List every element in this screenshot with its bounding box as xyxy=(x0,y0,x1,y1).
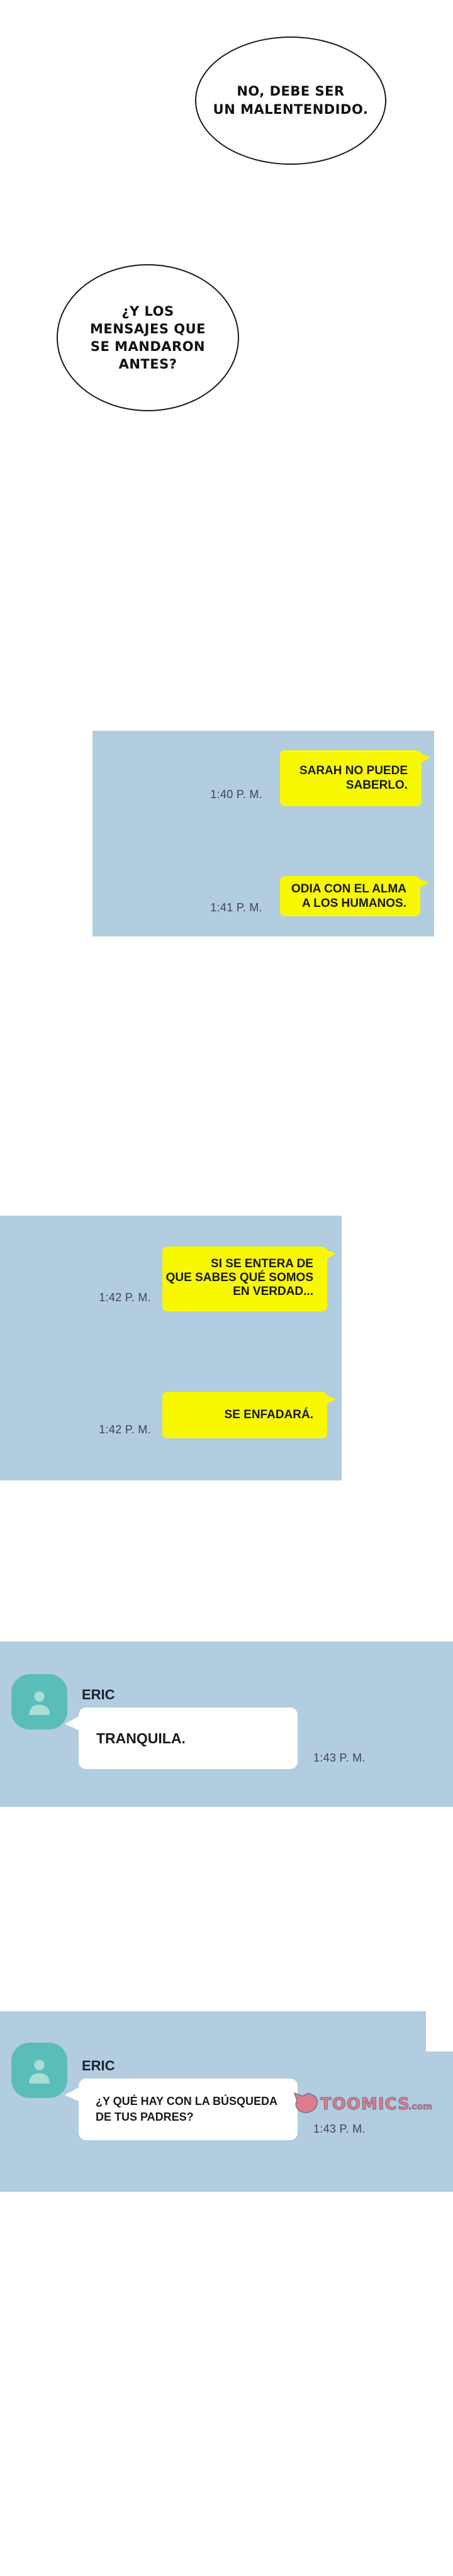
sender-name: ERIC xyxy=(82,2058,115,2074)
message-bubble: SI SE ENTERA DE QUE SABES QUÉ SOMOS EN V… xyxy=(162,1246,327,1311)
bubble-tail-icon xyxy=(325,1395,336,1405)
panel-corner-notch xyxy=(426,2011,453,2051)
avatar xyxy=(11,1674,67,1729)
message-bubble: ODIA CON EL ALMA A LOS HUMANOS. xyxy=(280,876,420,916)
toomics-watermark: TOOMICS .com xyxy=(294,2091,442,2115)
message-bubble: SE ENFADARÁ. xyxy=(162,1392,327,1438)
person-icon xyxy=(22,2053,57,2088)
timestamp: 1:42 P. M. xyxy=(99,1423,151,1436)
speech-bubble-2: ¿Y LOS MENSAJES QUE SE MANDARON ANTES? xyxy=(57,264,239,411)
message-bubble: SARAH NO PUEDE SABERLO. xyxy=(280,750,422,806)
bubble-tail-icon xyxy=(65,1716,80,1731)
avatar xyxy=(11,2043,67,2098)
person-icon xyxy=(22,1685,57,1719)
timestamp: 1:43 P. M. xyxy=(313,2123,366,2135)
timestamp: 1:43 P. M. xyxy=(313,1752,366,1764)
message-bubble: ¿Y QUÉ HAY CON LA BÚSQUEDA DE TUS PADRES… xyxy=(79,2079,298,2140)
bubble-tail-icon xyxy=(325,1250,336,1260)
chat-panel-outgoing-1: SARAH NO PUEDE SABERLO. 1:40 P. M. ODIA … xyxy=(92,731,434,936)
chat-panel-outgoing-2: SI SE ENTERA DE QUE SABES QUÉ SOMOS EN V… xyxy=(0,1216,342,1480)
toomics-brand-text: TOOMICS xyxy=(320,2095,410,2114)
bubble-tail-icon xyxy=(420,753,430,763)
bubble-tail-icon xyxy=(65,2087,80,2102)
timestamp: 1:42 P. M. xyxy=(99,1291,151,1304)
comic-page: NO, DEBE SER UN MALENTENDIDO. ¿Y LOS MEN… xyxy=(0,0,453,2576)
toomics-suffix-text: .com xyxy=(408,2102,432,2112)
bubble-tail-icon xyxy=(418,879,429,889)
message-bubble: TRANQUILA. xyxy=(79,1707,298,1769)
toomics-cat-icon xyxy=(294,2093,317,2112)
chat-panel-incoming-2: ERIC ¿Y QUÉ HAY CON LA BÚSQUEDA DE TUS P… xyxy=(0,2011,453,2192)
chat-panel-incoming-1: ERIC TRANQUILA. 1:43 P. M. xyxy=(0,1641,453,1807)
timestamp: 1:40 P. M. xyxy=(210,788,262,801)
sender-name: ERIC xyxy=(82,1687,115,1702)
speech-bubble-1: NO, DEBE SER UN MALENTENDIDO. xyxy=(195,36,386,165)
timestamp: 1:41 P. M. xyxy=(210,901,262,914)
